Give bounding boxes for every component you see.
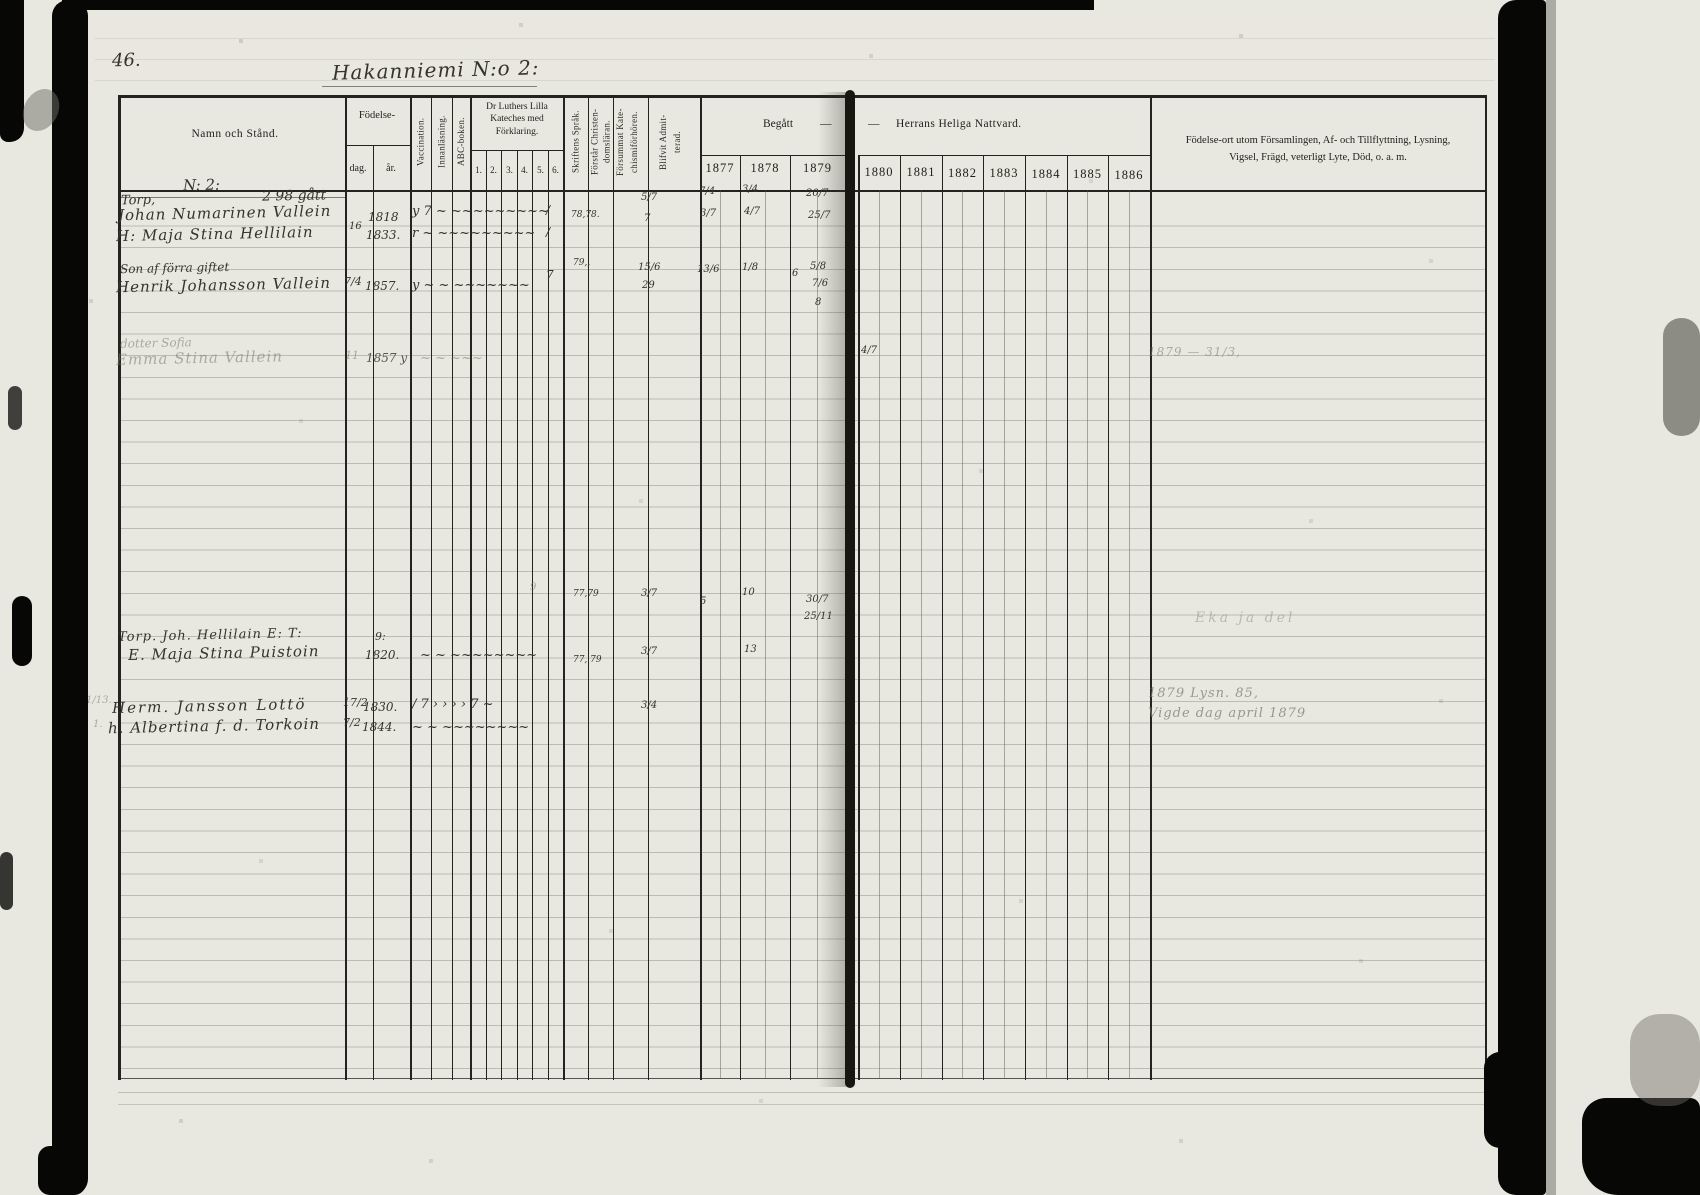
grid-vline: [740, 155, 741, 1080]
header-catechism-2: 2.: [486, 165, 501, 175]
scanned-register-page: 46. Hakanniemi N:o 2: Na: [0, 0, 1700, 1195]
entry7-exam-years: 77, 79: [573, 655, 602, 665]
edge-blob: [1484, 1052, 1516, 1148]
entry3-birth-year: 1833.: [366, 228, 400, 242]
entry7-birth-year: 1830.: [363, 700, 397, 714]
entry8-birth-year: 1844.: [362, 720, 396, 734]
entry1-number: N: 2:: [183, 176, 220, 195]
header-catechism-6: 6.: [548, 165, 563, 175]
entry3-admitted: 7: [644, 213, 650, 224]
entry5-margin-note: 1879 — 31/3,: [1148, 345, 1241, 359]
entry7-margin-mark: 1/13.: [86, 695, 112, 706]
grid-midline: [1004, 190, 1005, 1078]
entry8-birth-day: 7/2: [343, 716, 361, 729]
entry6-communion-1879a: 30/7: [806, 594, 828, 605]
header-catechism-1: 1.: [471, 165, 486, 175]
entry3-communion-1879: 25/7: [808, 210, 830, 221]
edge-blob: [38, 1146, 86, 1195]
entry6-communion-1878: 10: [742, 587, 755, 598]
entry3-communion-1878: 4/7: [744, 206, 760, 217]
title-underline: [322, 86, 537, 87]
header-abc-book: ABC-boken.: [452, 98, 470, 186]
header-dash-right: —: [868, 118, 880, 130]
grid-vline: [1108, 155, 1109, 1080]
grid-vline: [858, 155, 860, 1080]
entry4-communion-1878: 1/8: [742, 262, 758, 273]
grid-midline: [921, 190, 922, 1078]
entry6-exam-years: 77,79: [573, 589, 599, 599]
grid-midline: [962, 190, 963, 1078]
entry8-admitted: 3/4: [641, 700, 657, 711]
entry2-admitted: 5/7: [641, 192, 657, 203]
entry4-birth-day: 7/4: [344, 275, 362, 288]
entry4-communion-1879c: 7/6: [812, 278, 828, 289]
table-right-border: [1485, 95, 1487, 1080]
grid-vline: [1150, 95, 1152, 1080]
entry7-admitted: 3/7: [641, 646, 657, 657]
grid-vline: [942, 155, 943, 1080]
header-admitted-2: terad.: [670, 98, 684, 186]
entry6-premark: 9: [530, 582, 536, 593]
header-admitted-1: Blifvit Admit-: [656, 98, 670, 186]
entry2-scripture-mark: /: [546, 203, 550, 217]
year-1881: 1881: [900, 165, 942, 180]
entry2-birth-year: 1818: [368, 210, 399, 224]
header-catechism-5: 5.: [533, 165, 548, 175]
year-1886: 1886: [1108, 168, 1150, 183]
entry4-admitted-1: 15/6: [638, 262, 660, 273]
book-spine: [845, 90, 855, 1088]
grid-midline: [1087, 190, 1088, 1078]
table-top-border: [118, 95, 1487, 98]
header-birth-day: dag.: [344, 163, 372, 174]
grid-vline: [900, 155, 901, 1080]
year-1885: 1885: [1067, 167, 1108, 182]
grid-vline: [431, 95, 432, 1080]
grid-vline: [452, 95, 453, 1080]
entry4-exam-years: 79,,: [573, 258, 590, 268]
entry5-name: Emma Stina Vallein: [116, 347, 283, 368]
edge-blob: [8, 386, 22, 430]
entry6-communion-1877: 5: [700, 596, 706, 607]
entry7-exam-marks: / 7 › › › › 7 ~: [412, 697, 564, 712]
entry6-day: 9:: [375, 630, 386, 643]
entry4-scripture-mark: 7: [546, 268, 554, 282]
grid-hline: [345, 145, 410, 146]
entry6-exam-marks: ~ ~ ~~~~~~~~: [420, 648, 565, 663]
grid-vline: [613, 95, 614, 1080]
header-missed-2: chismiförhören.: [627, 98, 641, 186]
header-catechism-4: 4.: [517, 165, 532, 175]
grid-midline: [1129, 190, 1130, 1078]
entry2-exam-marks: y 7 ~ ~~~~~~~~~: [412, 204, 564, 219]
entry5-birth-year: 1857 y: [366, 351, 407, 365]
page-number: 46.: [112, 50, 141, 72]
edge-smudge: [1630, 1014, 1700, 1106]
entry4-communion-1879b: 5/8: [810, 261, 826, 272]
entry6-communion-1879b: 25/11: [804, 611, 833, 622]
header-reading: Innanläsning.: [431, 98, 452, 186]
edge-blob: [0, 0, 24, 142]
header-catechism: Dr Luthers Lilla Kateches med Förklaring…: [472, 101, 562, 138]
entry4-admitted-2: 29: [642, 280, 655, 291]
entry4-communion-1879a: 6: [792, 268, 798, 279]
header-vaccination: Vaccination.: [410, 98, 431, 186]
grid-midline: [879, 190, 880, 1078]
entry4-exam-marks: y ~ ~ ~~~~~~~: [412, 278, 564, 293]
header-understands-2: domsläran.: [600, 98, 613, 186]
entry6-birth-year: 1820.: [365, 648, 399, 662]
grid-vline: [790, 155, 791, 1080]
entry5-birth-day: 11: [345, 349, 359, 362]
header-name-column: Namn och Stånd.: [140, 128, 330, 140]
grid-vline: [588, 95, 589, 1080]
edge-blob: [12, 596, 32, 666]
entry8-margin-mark: 1.: [93, 719, 103, 730]
grid-hline: [858, 155, 1150, 156]
year-1878: 1878: [740, 161, 790, 176]
grid-midline: [765, 190, 766, 1078]
entry5-exam-marks: ~ ~ ~~~: [420, 351, 560, 366]
faint-ruling-body: [118, 205, 1487, 1080]
header-nattvard: Herrans Heliga Nattvard.: [896, 118, 1022, 130]
grid-hline: [118, 1104, 1490, 1105]
entry4-communion-1879d: 8: [815, 297, 821, 308]
grid-vline: [345, 95, 347, 1080]
header-notes-line1: Födelse-ort utom Församlingen, Af- och T…: [1162, 133, 1474, 150]
edge-blob: [62, 0, 1094, 10]
entry5-communion-1880: 4/7: [861, 345, 877, 356]
header-notes-line2: Vigsel, Frägd, veterligt Lyte, Död, o. a…: [1162, 152, 1474, 163]
entry3-scripture-mark: /: [546, 225, 550, 239]
year-1877: 1877: [700, 161, 740, 176]
entry8-margin-note2: Vigde dag april 1879: [1148, 706, 1306, 721]
entry2-communion-1878: 3/4: [742, 184, 758, 195]
grid-hline: [118, 1092, 1490, 1093]
year-1882: 1882: [942, 166, 983, 181]
entry4-communion-1877: 13/6: [697, 264, 719, 275]
year-1879: 1879: [790, 161, 845, 176]
grid-vline: [1067, 155, 1068, 1080]
entry3-communion-1877: 3/7: [700, 208, 716, 219]
grid-midline: [1046, 190, 1047, 1078]
grid-vline: [700, 95, 702, 1080]
grid-vline: [563, 95, 565, 1080]
faint-ruling-top: [95, 18, 1495, 88]
year-1880: 1880: [858, 165, 900, 180]
entry2-communion-1879: 20/7: [806, 188, 828, 199]
header-dash-left: —: [820, 118, 832, 130]
entry6-margin-note: Eka ja del: [1195, 610, 1295, 626]
entry2-exam-years: 78,78.: [571, 210, 600, 220]
page-fold-shadow: [818, 92, 846, 1087]
header-birth-year: år.: [373, 163, 409, 174]
edge-smudge: [1546, 0, 1556, 1195]
edge-blob: [1498, 0, 1546, 1195]
entry3-birth-day: 16: [349, 221, 362, 232]
header-catechism-3: 3.: [502, 165, 517, 175]
entry2-communion-1877: 7/4: [699, 186, 715, 197]
grid-vline: [470, 95, 472, 1080]
entry6-admitted: 3/7: [641, 588, 657, 599]
grid-midline: [720, 190, 721, 1078]
grid-vline: [1025, 155, 1026, 1080]
edge-blob: [0, 852, 13, 910]
entry4-relation: Son af förra giftet: [120, 260, 229, 276]
table-bottom-border: [118, 1078, 1487, 1079]
year-1884: 1884: [1025, 167, 1067, 182]
header-missed-1: Försummat Kate-: [613, 98, 627, 186]
entry8-margin-note1: 1879 Lysn. 85,: [1148, 686, 1259, 701]
grid-vline: [983, 155, 984, 1080]
header-begatt: Begått: [763, 118, 793, 130]
header-birth: Födelse-: [343, 110, 411, 121]
grid-vline: [410, 95, 412, 1080]
edge-smudge: [1663, 318, 1700, 436]
year-1883: 1883: [983, 166, 1025, 181]
header-scripture: Skriftens Språk.: [563, 98, 588, 186]
entry3-exam-marks: r ~ ~~~~~~~~~: [412, 226, 564, 241]
entry8-exam-marks: ~ ~ ~~~~~~~~: [412, 720, 564, 735]
entry7-communion-1878: 13: [744, 644, 757, 655]
entry4-birth-year: 1857.: [365, 279, 399, 293]
edge-blob: [52, 0, 88, 1195]
edge-blob: [1582, 1098, 1700, 1195]
